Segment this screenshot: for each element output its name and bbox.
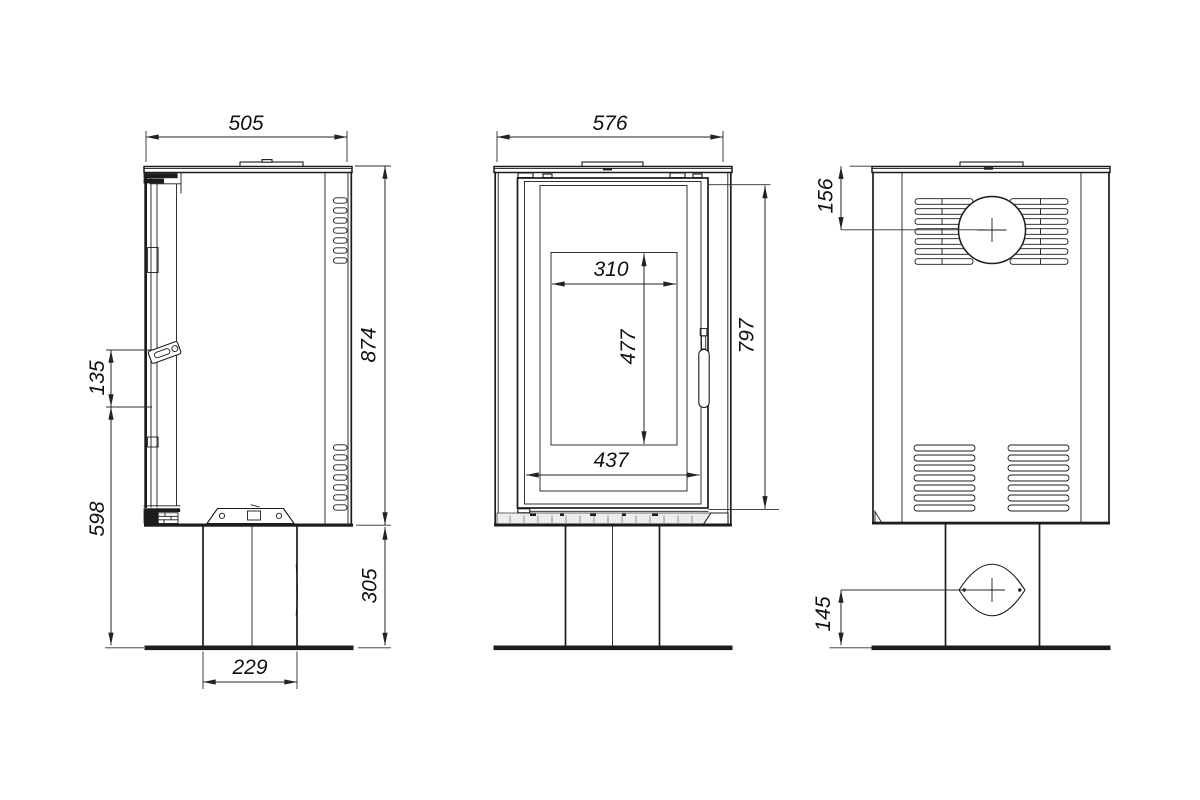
dim-door-width: 437 bbox=[526, 449, 700, 475]
side-base-plate bbox=[145, 646, 354, 651]
side-top-plate bbox=[144, 160, 352, 173]
back-view: 156 145 bbox=[812, 162, 1111, 650]
back-corner-bracket bbox=[875, 512, 882, 524]
dim-glass-width-label: 310 bbox=[593, 258, 628, 281]
dim-door-height: 797 bbox=[709, 185, 780, 510]
dim-glass-height: 477 bbox=[617, 254, 644, 445]
front-door-hinges bbox=[518, 173, 702, 178]
stove-technical-drawing: 505 874 305 135 598 229 bbox=[0, 0, 1200, 800]
front-view: 576 310 477 437 797 bbox=[494, 112, 780, 650]
back-vent-slots-bottom bbox=[914, 445, 1069, 511]
dim-body-height: 874 bbox=[355, 166, 391, 525]
dim-side-depth-label: 505 bbox=[228, 112, 263, 135]
dim-air-inlet-height-label: 145 bbox=[812, 596, 835, 631]
dim-door-base-height: 598 bbox=[86, 407, 144, 648]
dim-glass-height-label: 477 bbox=[617, 328, 640, 364]
side-view: 505 874 305 135 598 229 bbox=[86, 112, 391, 689]
dim-glass-width: 310 bbox=[552, 258, 676, 284]
dim-handle-offset-label: 135 bbox=[86, 360, 109, 395]
side-door-bottom bbox=[144, 506, 181, 524]
side-door-profile bbox=[144, 173, 181, 508]
back-body-bottom-edge bbox=[872, 522, 1110, 525]
side-vent-slots-top bbox=[334, 198, 348, 263]
front-plinth-strip bbox=[497, 509, 728, 525]
side-pedestal-bracket bbox=[207, 505, 294, 524]
dim-door-height-label: 797 bbox=[736, 317, 759, 353]
dim-pedestal-depth: 229 bbox=[203, 652, 297, 690]
back-top-plate bbox=[872, 162, 1110, 173]
dim-air-inlet-height: 145 bbox=[812, 590, 990, 648]
side-body-back-panel bbox=[325, 173, 351, 525]
front-pedestal bbox=[566, 527, 660, 646]
back-base-plate bbox=[872, 646, 1111, 651]
front-body-bottom-edge bbox=[494, 524, 732, 527]
side-pedestal bbox=[203, 527, 297, 646]
dim-front-width-label: 576 bbox=[592, 112, 627, 135]
air-inlet-screw-right bbox=[1018, 588, 1021, 591]
side-vent-slots-bottom bbox=[334, 445, 348, 510]
dim-pedestal-depth-label: 229 bbox=[231, 656, 267, 679]
front-glass-pane bbox=[551, 253, 677, 446]
dim-pedestal-height: 305 bbox=[358, 527, 391, 648]
side-body-bottom-edge bbox=[144, 524, 353, 527]
dim-door-width-label: 437 bbox=[593, 449, 629, 472]
dim-front-width: 576 bbox=[497, 112, 723, 162]
front-base-plate bbox=[494, 646, 733, 651]
front-top-plate bbox=[494, 162, 732, 173]
dim-pedestal-height-label: 305 bbox=[359, 568, 382, 603]
dim-flue-offset-label: 156 bbox=[815, 178, 838, 213]
dim-side-depth: 505 bbox=[146, 112, 347, 162]
dim-body-height-label: 874 bbox=[358, 327, 381, 362]
dim-door-base-height-label: 598 bbox=[86, 501, 109, 536]
drawing-canvas: 505 874 305 135 598 229 bbox=[0, 0, 1200, 800]
dim-handle-offset: 135 bbox=[86, 350, 152, 407]
